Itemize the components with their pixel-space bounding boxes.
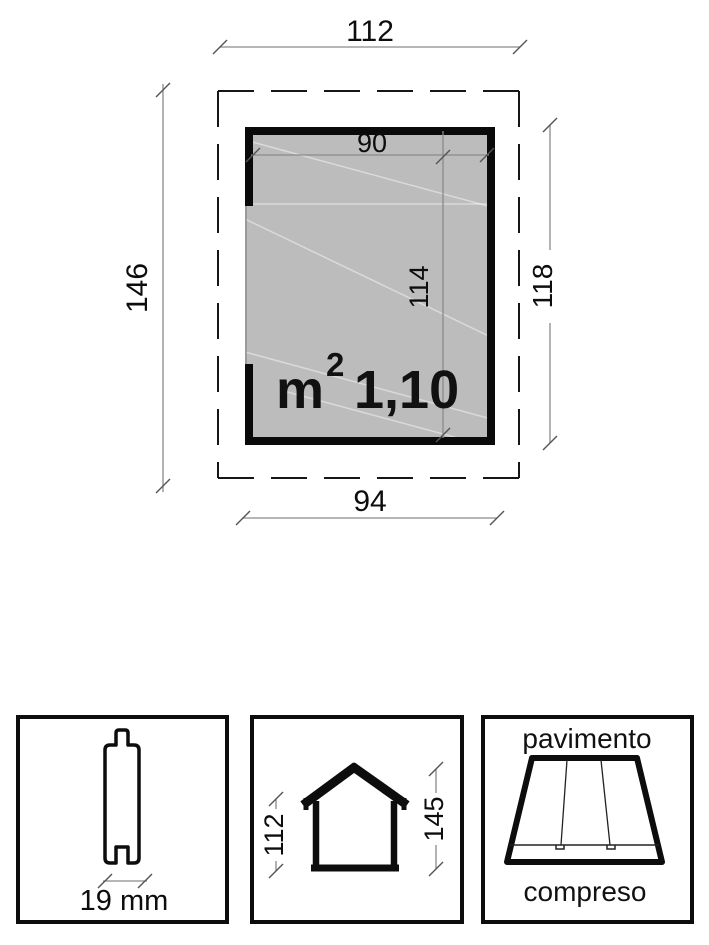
technical-drawing: 112 146	[0, 0, 709, 945]
dim-wall-height-label: 112	[259, 813, 289, 856]
plank-profile-icon	[105, 730, 139, 863]
area-exponent: 2	[326, 346, 344, 383]
dim-left-height: 146	[121, 83, 170, 493]
dim-right-depth: 118	[527, 118, 558, 450]
dim-bottom-width-label: 94	[353, 485, 386, 518]
area-value: 1,10	[354, 360, 459, 420]
dim-inner-width-label: 90	[357, 128, 387, 158]
floor-planks-icon	[507, 758, 662, 862]
dim-left-height-label: 146	[121, 263, 154, 313]
elevation-detail-box: 112 145	[252, 717, 462, 922]
plank-detail-box: 19 mm	[18, 717, 227, 922]
floor-caption-top: pavimento	[522, 723, 651, 754]
dim-top-width: 112	[213, 15, 527, 54]
dim-bottom-width: 94	[236, 485, 504, 525]
floor-caption-bottom: compreso	[524, 876, 647, 907]
dim-plank-thickness-label: 19 mm	[80, 885, 169, 917]
floor-plan: 112 146	[121, 15, 558, 525]
diagram-page: 112 146	[0, 0, 709, 945]
floor-detail-box: pavimento compreso	[483, 717, 692, 922]
dim-right-depth-label: 118	[527, 264, 558, 309]
floor-slab-outline	[507, 758, 662, 862]
dim-ridge-height-label: 145	[419, 796, 449, 841]
dim-inner-depth-label: 114	[404, 265, 434, 308]
dim-top-width-label: 112	[346, 15, 394, 48]
area-unit: m	[276, 360, 324, 420]
